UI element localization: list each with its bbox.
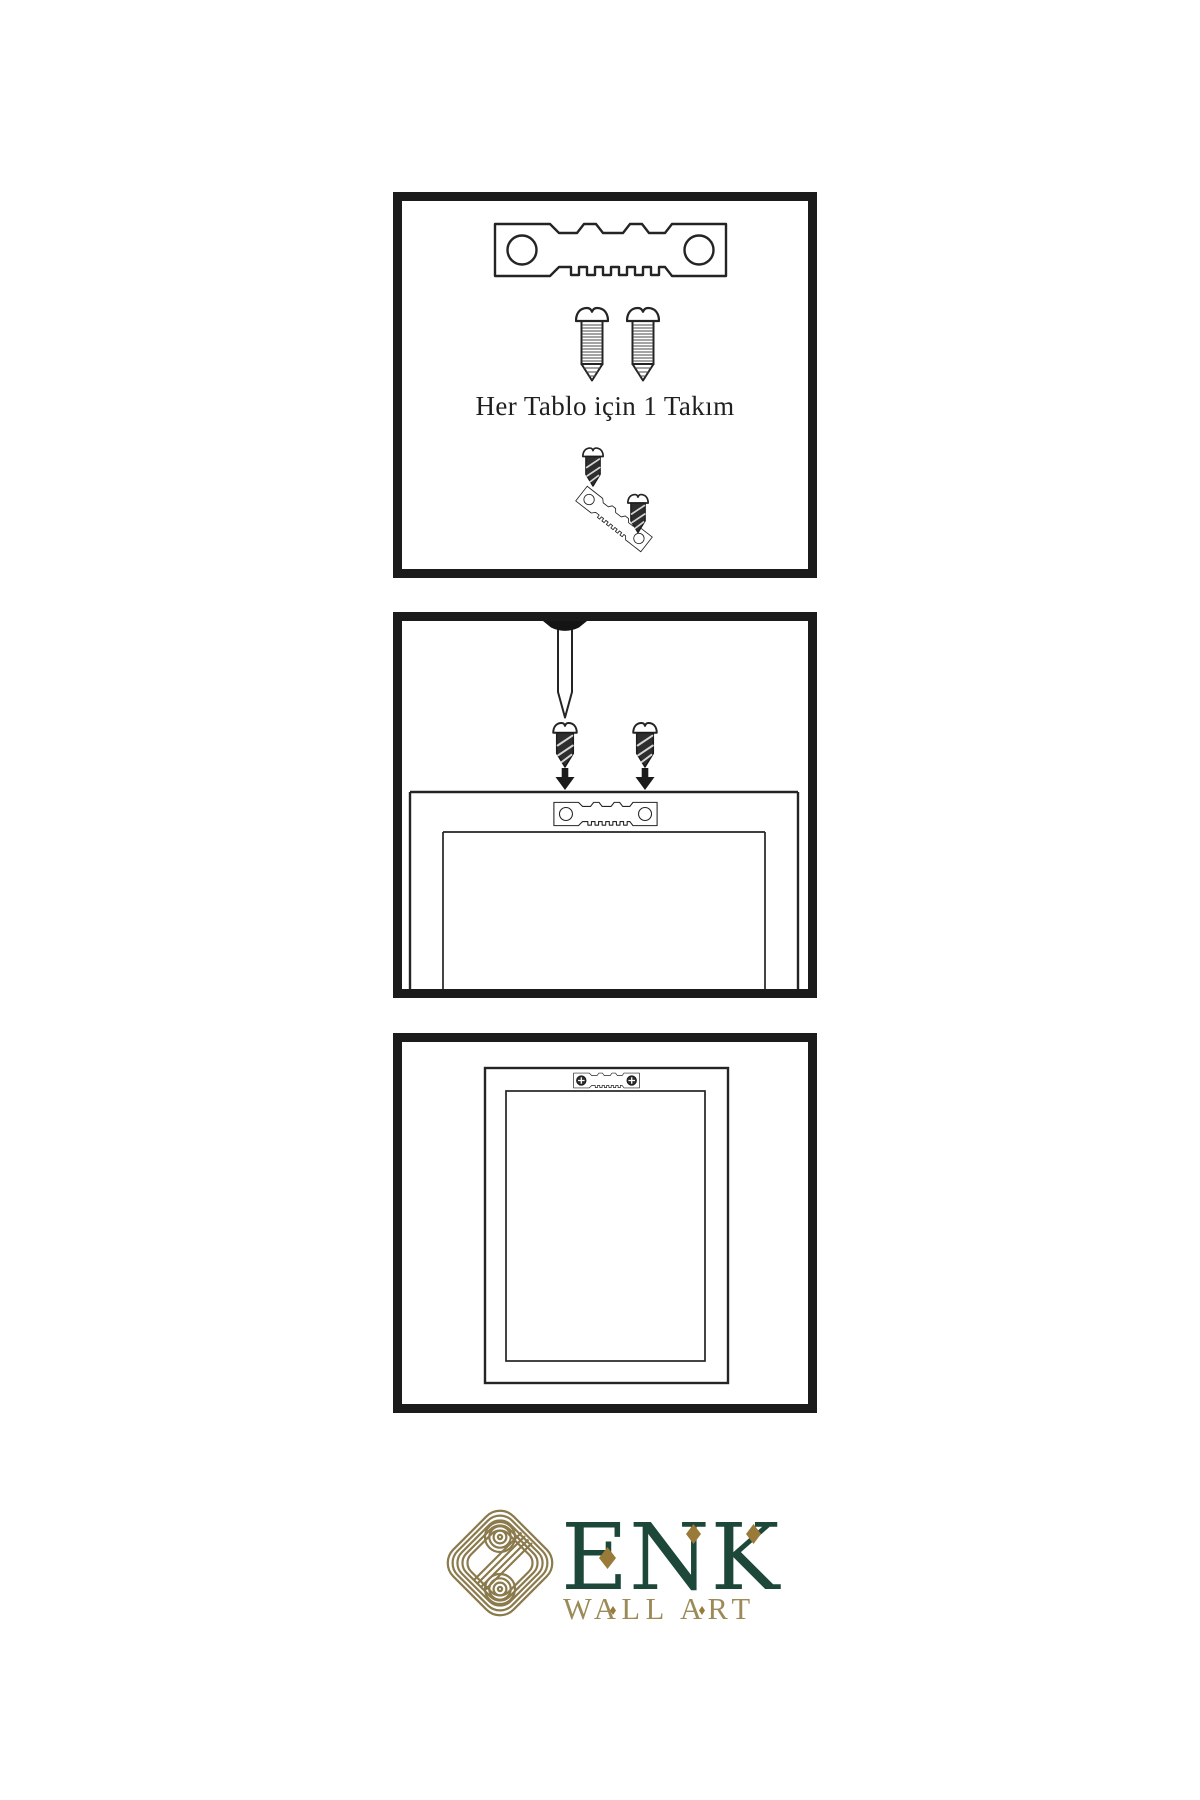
down-arrow-icon	[556, 768, 575, 790]
kit-caption: Her Tablo için 1 Takım	[402, 391, 808, 422]
down-arrow-icon	[636, 768, 655, 790]
screw-icon	[576, 308, 608, 381]
step1-panel: Her Tablo için 1 Takım	[393, 192, 817, 578]
instruction-sheet: Her Tablo için 1 Takım	[0, 0, 1200, 1800]
step2-illustration	[402, 621, 808, 989]
small-screw-icon	[583, 448, 603, 486]
sawtooth-hanger-icon	[495, 224, 726, 276]
hanging-frame-icon	[485, 1068, 728, 1383]
brand-name: ENK	[561, 1512, 780, 1604]
sawtooth-hanger-icon	[554, 802, 657, 825]
dark-screw-icon	[553, 723, 577, 767]
step2-panel	[393, 612, 817, 998]
nail-icon	[543, 621, 587, 718]
screw-icon	[627, 308, 659, 381]
brand-subtitle: WALL ART	[563, 1592, 756, 1627]
step1-illustration	[402, 201, 808, 569]
knot-icon	[438, 1496, 562, 1630]
step3-illustration	[402, 1042, 808, 1404]
dark-screw-icon	[633, 723, 657, 767]
step3-panel	[393, 1033, 817, 1413]
